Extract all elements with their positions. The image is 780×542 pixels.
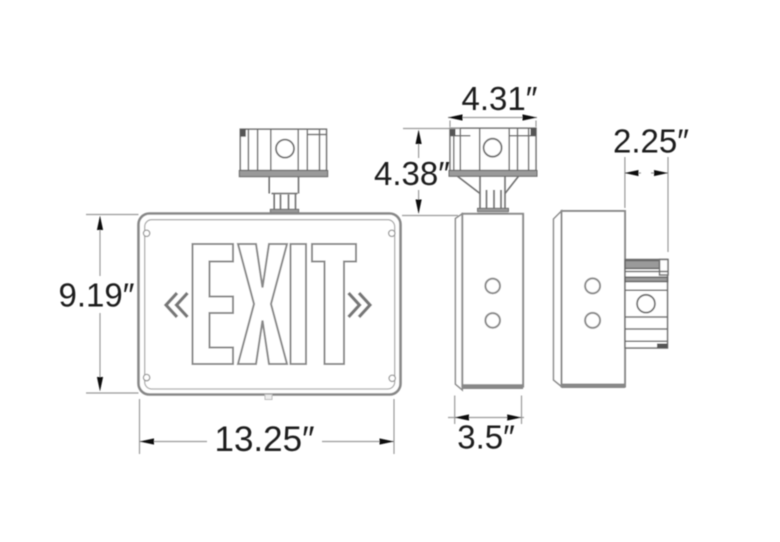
svg-text:3.5″: 3.5″: [457, 419, 515, 456]
svg-text:9.19″: 9.19″: [59, 277, 135, 314]
svg-text:13.25″: 13.25″: [215, 420, 315, 459]
svg-text:2.25″: 2.25″: [613, 123, 689, 160]
svg-text:4.38″: 4.38″: [374, 155, 450, 192]
svg-text:4.31″: 4.31″: [462, 80, 538, 117]
